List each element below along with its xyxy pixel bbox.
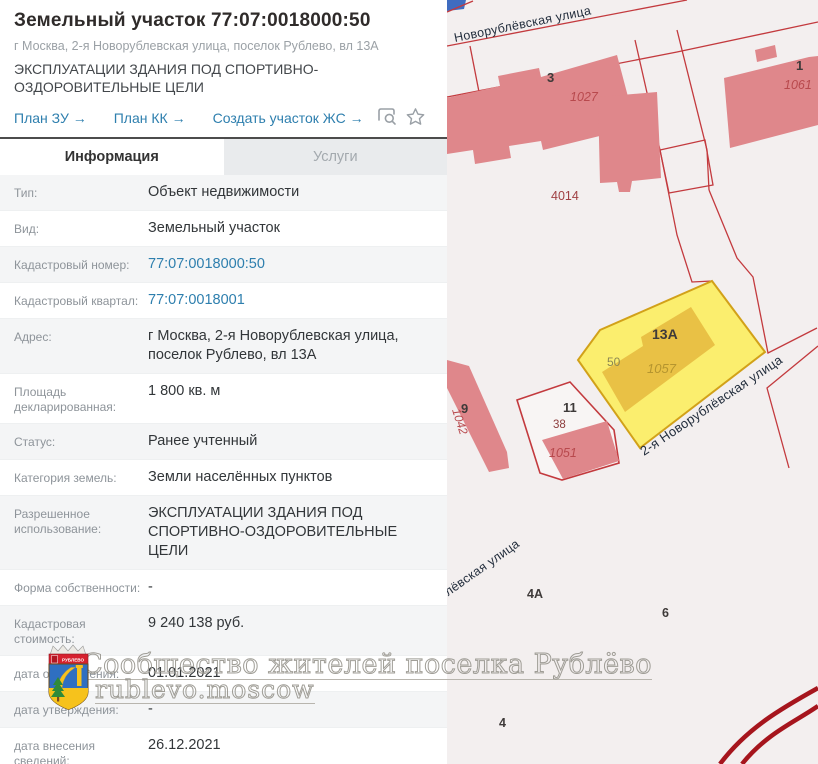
row-value: 1 800 кв. м — [148, 382, 426, 415]
row-value: Земли населённых пунктов — [148, 468, 426, 487]
row-label: Адрес: — [0, 327, 148, 365]
table-row: дата утверждения: - — [0, 692, 447, 728]
plot-label-11: 11 — [563, 400, 577, 415]
table-row: дата определения: 01.01.2021 — [0, 656, 447, 692]
cadastral-quarter-link[interactable]: 77:07:0018001 — [148, 291, 426, 310]
row-label: дата внесения сведений: — [0, 736, 148, 764]
plan-links-row: План ЗУ → План КК → Создать участок ЖС → — [14, 107, 433, 129]
table-row: Категория земель: Земли населённых пункт… — [0, 460, 447, 496]
plot-label-1: 1 — [796, 58, 803, 73]
attributes-table: Тип: Объект недвижимости Вид: Земельный … — [0, 175, 447, 764]
table-row: Площадь декларированная: 1 800 кв. м — [0, 374, 447, 424]
page-title: Земельный участок 77:07:0018000:50 — [14, 10, 433, 32]
row-value: Ранее учтенный — [148, 432, 426, 451]
parcel-usage-line: ЭКСПЛУАТАЦИИ ЗДАНИЯ ПОД СПОРТИВНО-ОЗДОРО… — [14, 60, 414, 96]
tab-services[interactable]: Услуги — [224, 139, 448, 175]
plot-label-13a: 13А — [652, 326, 678, 342]
row-value: 01.01.2021 — [148, 664, 426, 683]
building-label-1027: 1027 — [570, 90, 599, 104]
table-row: Кадастровая стоимость: 9 240 138 руб. — [0, 606, 447, 656]
row-label: дата определения: — [0, 664, 148, 683]
panel-tabbar: Информация Услуги — [0, 137, 447, 175]
row-label: Категория земель: — [0, 468, 148, 487]
building-label-1057: 1057 — [647, 361, 677, 376]
pkk-parcel-screen: Земельный участок 77:07:0018000:50 г Мос… — [0, 0, 818, 764]
plot-label-3: 3 — [547, 70, 554, 85]
parcel-address-subtitle: г Москва, 2-я Новорублевская улица, посе… — [14, 39, 433, 53]
row-label: дата утверждения: — [0, 700, 148, 719]
row-value: - — [148, 578, 426, 597]
plan-kk-link[interactable]: План КК → — [114, 110, 186, 126]
row-label: Вид: — [0, 219, 148, 238]
plot-label-6: 6 — [662, 606, 669, 620]
table-row: Статус: Ранее учтенный — [0, 424, 447, 460]
table-row: Разрешенное использование: ЭКСПЛУАТАЦИИ … — [0, 496, 447, 570]
row-value: ЭКСПЛУАТАЦИИ ЗДАНИЯ ПОД СПОРТИВНО-ОЗДОРО… — [148, 504, 426, 561]
plot-label-4a: 4А — [527, 587, 543, 601]
row-value: Земельный участок — [148, 219, 426, 238]
parcel-info-panel: Земельный участок 77:07:0018000:50 г Мос… — [0, 0, 447, 764]
row-label: Форма собственности: — [0, 578, 148, 597]
table-row: Форма собственности: - — [0, 570, 447, 606]
row-label: Тип: — [0, 183, 148, 202]
row-value: 26.12.2021 — [148, 736, 426, 764]
row-label: Кадастровая стоимость: — [0, 614, 148, 647]
table-row: Адрес: г Москва, 2-я Новорублевская улиц… — [0, 319, 447, 374]
plot-label-4: 4 — [499, 716, 506, 730]
tab-information[interactable]: Информация — [0, 139, 224, 175]
plot-label-50: 50 — [607, 355, 621, 369]
row-label: Разрешенное использование: — [0, 504, 148, 561]
row-label: Площадь декларированная: — [0, 382, 148, 415]
parcel-header: Земельный участок 77:07:0018000:50 г Мос… — [0, 0, 447, 129]
row-value: Объект недвижимости — [148, 183, 426, 202]
header-icons — [377, 107, 425, 126]
table-row: Тип: Объект недвижимости — [0, 175, 447, 211]
plot-label-38: 38 — [553, 419, 566, 431]
star-icon[interactable] — [406, 107, 425, 126]
table-row: Вид: Земельный участок — [0, 211, 447, 247]
row-label: Статус: — [0, 432, 148, 451]
table-row: Кадастровый квартал: 77:07:0018001 — [0, 283, 447, 319]
table-row: Кадастровый номер: 77:07:0018000:50 — [0, 247, 447, 283]
row-label: Кадастровый номер: — [0, 255, 148, 274]
row-value: - — [148, 700, 426, 719]
cadastral-map[interactable]: Новорублёвская улица 2-я Новорублёвская … — [447, 0, 818, 764]
create-zhs-link[interactable]: Создать участок ЖС → — [213, 110, 364, 126]
building-label-1061: 1061 — [784, 78, 812, 92]
table-row: дата внесения сведений: 26.12.2021 — [0, 728, 447, 764]
row-value: г Москва, 2-я Новорублевская улица, посе… — [148, 327, 426, 365]
row-label: Кадастровый квартал: — [0, 291, 148, 310]
cadastral-number-link[interactable]: 77:07:0018000:50 — [148, 255, 426, 274]
building-label-1051: 1051 — [549, 446, 577, 460]
plan-zu-link[interactable]: План ЗУ → — [14, 110, 87, 126]
row-value: 9 240 138 руб. — [148, 614, 426, 647]
quarter-label-4014: 4014 — [551, 189, 579, 203]
magnifier-document-icon[interactable] — [377, 107, 397, 126]
